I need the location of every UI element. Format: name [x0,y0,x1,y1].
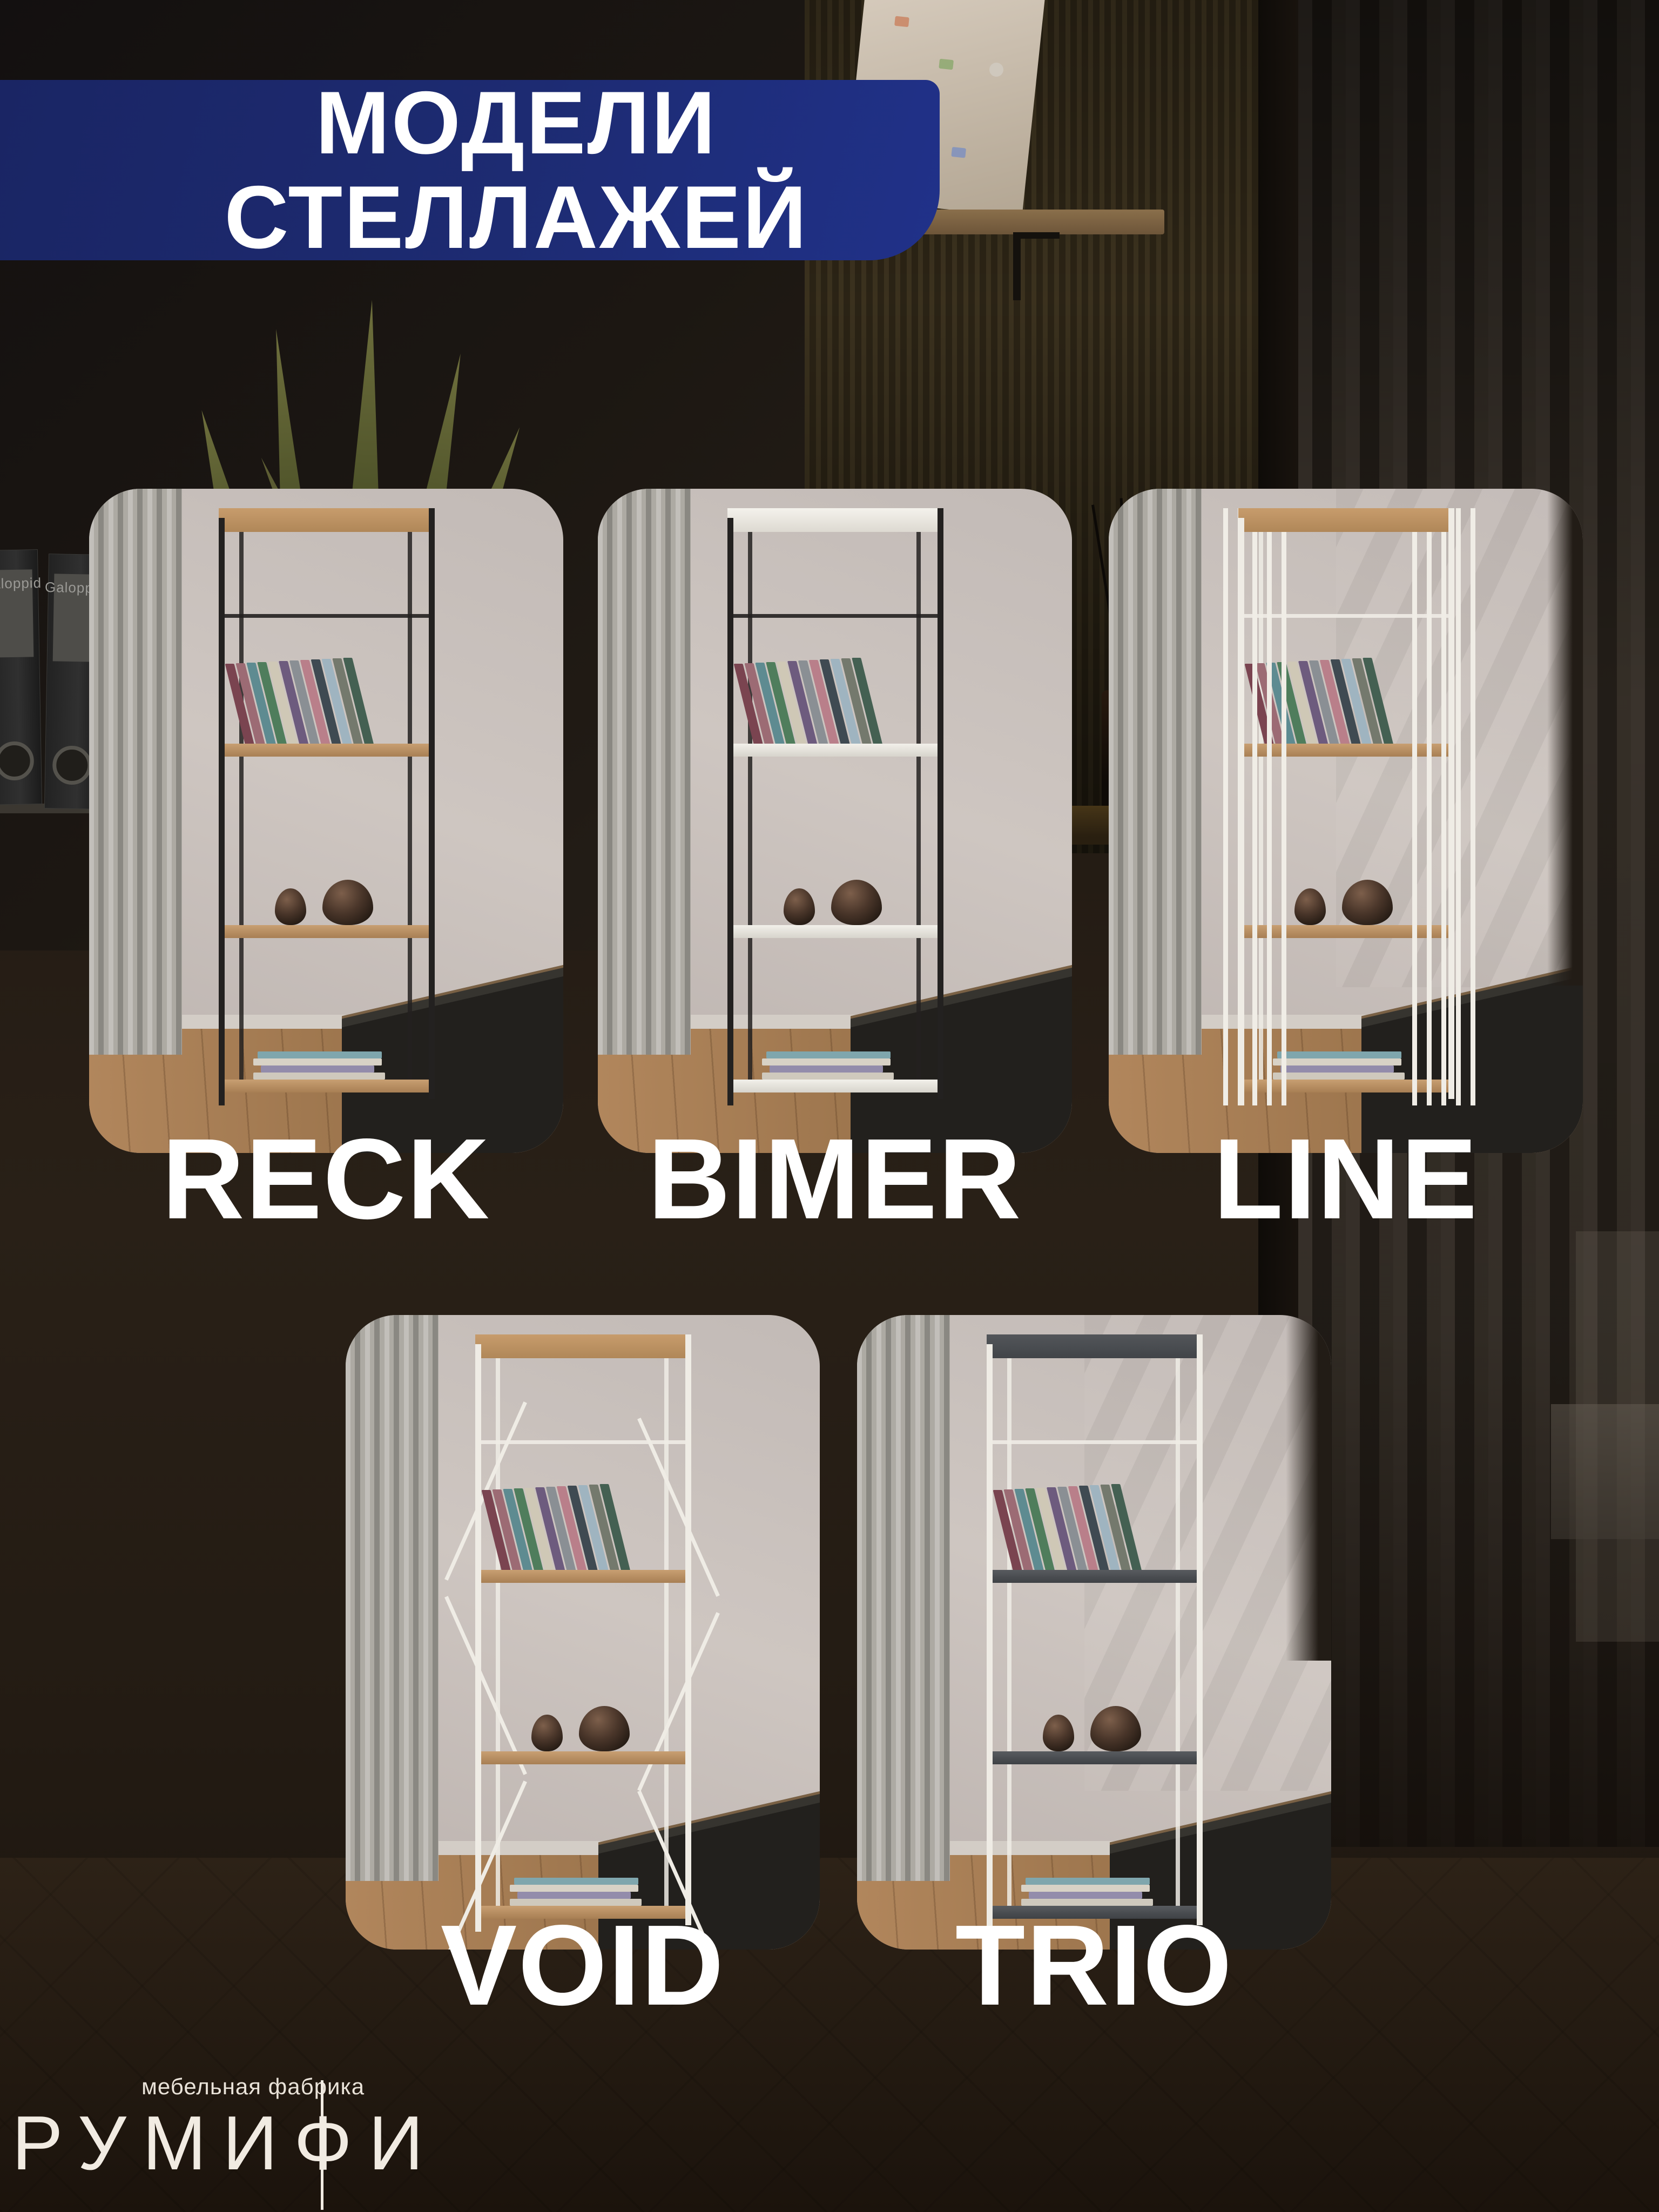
unit-post [496,1338,500,1917]
unit-post [408,508,412,1085]
unit-shelf [987,1751,1203,1764]
unit-top [1238,508,1454,532]
unit-post [664,1334,669,1911]
unit-post [219,518,225,1105]
shelf-unit [727,508,943,1105]
stacked-book [766,1051,891,1058]
unit-post [239,511,244,1090]
unit-post [1238,518,1244,1105]
unit-shelf [219,744,435,757]
book-stack [253,1051,394,1080]
vase-big [1342,880,1393,925]
stacked-book [258,1051,382,1058]
vase-small [1294,888,1326,925]
unit-shelf [219,925,435,938]
binder-hole [52,745,92,785]
stacked-book [1273,1058,1401,1065]
vase-big [579,1706,630,1751]
moodboard-pin [989,63,1003,77]
logo-tagline: мебельная фабрика [141,2074,365,2100]
model-label: LINE [1076,1122,1615,1236]
vase-small [1043,1715,1074,1751]
unit-post [429,508,435,1099]
stacked-book [1021,1885,1150,1892]
unit-shelf [987,1570,1203,1583]
model-photo [598,489,1072,1153]
binder-label: Galoppid [0,569,33,657]
model-label: BIMER [565,1122,1104,1236]
promo-page: Galoppid Galoppid МОДЕЛИ СТЕЛЛАЖЕЙ [0,0,1659,2212]
binder-hole [0,741,34,780]
photo-curtain [857,1315,950,1881]
vases [531,1706,693,1751]
vases [784,880,946,925]
unit-post [1176,1334,1180,1911]
unit-top [475,1334,691,1358]
wall-shelf-bracket [1013,233,1021,300]
moodboard-speck [951,147,966,158]
photo-curtain-dark [1286,1315,1331,1661]
stacked-book [1273,1073,1405,1080]
stacked-book [1029,1892,1142,1899]
vase-big [831,880,882,925]
title-banner: МОДЕЛИ СТЕЛЛАЖЕЙ [0,80,940,260]
stacked-book [1277,1051,1401,1058]
unit-post [475,1344,481,1932]
unit-shelf [727,744,943,757]
unit-bar [731,614,940,618]
unit-post [938,508,943,1099]
stacked-book [514,1878,638,1885]
stacked-book [770,1065,883,1073]
unit-post [987,1344,993,1932]
unit-shelf [727,925,943,938]
unit-top [219,508,435,532]
stacked-book [762,1073,894,1080]
model-photo [89,489,563,1153]
stacked-book [1026,1878,1150,1885]
book-row [491,1471,619,1570]
unit-top [727,508,943,532]
photo-curtain [346,1315,439,1881]
unit-post [685,1334,691,1925]
slat-panel-left [1223,508,1288,1105]
model-label: RECK [57,1122,596,1236]
page-title-line2: СТЕЛЛАЖЕЙ [224,170,808,265]
photo-curtain [1109,489,1202,1055]
moodboard-speck [939,59,954,70]
unit-bar [990,1440,1199,1444]
model-photo [857,1315,1331,1950]
slat-panel-right [1412,508,1477,1105]
unit-shelf [475,1570,691,1583]
stacked-book [261,1065,374,1073]
stacked-book [253,1073,385,1080]
book-stack [762,1051,902,1080]
model-photo [346,1315,820,1950]
photo-curtain-dark [1547,489,1583,986]
book-stack [1273,1051,1413,1080]
page-title-line1: МОДЕЛИ [315,76,717,170]
model-label: TRIO [825,1908,1364,2022]
shelf-unit [219,508,435,1105]
brand-name: РУМИФИ [12,2105,440,2182]
vase-big [322,880,373,925]
shelf-unit [1238,508,1454,1105]
vase-small [531,1715,563,1751]
unit-post [1448,508,1454,1099]
stacked-book [253,1058,382,1065]
unit-post [1007,1338,1011,1917]
unit-top [987,1334,1203,1358]
vases [1043,1706,1205,1751]
stacked-book [510,1885,638,1892]
book-row [1003,1471,1131,1570]
binder: Galoppid [0,549,42,805]
unit-post [1197,1334,1203,1925]
photo-curtain [598,489,691,1055]
photo-curtain [89,489,182,1055]
book-row [744,644,872,744]
book-row [235,644,363,744]
unit-post [916,508,921,1085]
vase-big [1090,1706,1141,1751]
unit-shelf [475,1751,691,1764]
unit-shelf [219,1080,435,1092]
vase-small [275,888,306,925]
vase-small [784,888,815,925]
background-baseboard [1551,1404,1659,1539]
moodboard-speck [894,16,909,28]
model-photo [1109,489,1583,1153]
model-label: VOID [313,1908,852,2022]
stacked-book [762,1058,891,1065]
shelf-unit [987,1334,1203,1932]
unit-post [727,518,733,1105]
unit-shelf [727,1080,943,1092]
unit-bar [222,614,431,618]
vases [275,880,437,925]
stacked-book [517,1892,631,1899]
shelf-unit [475,1334,691,1932]
stacked-book [1280,1065,1394,1073]
unit-post [748,511,752,1090]
